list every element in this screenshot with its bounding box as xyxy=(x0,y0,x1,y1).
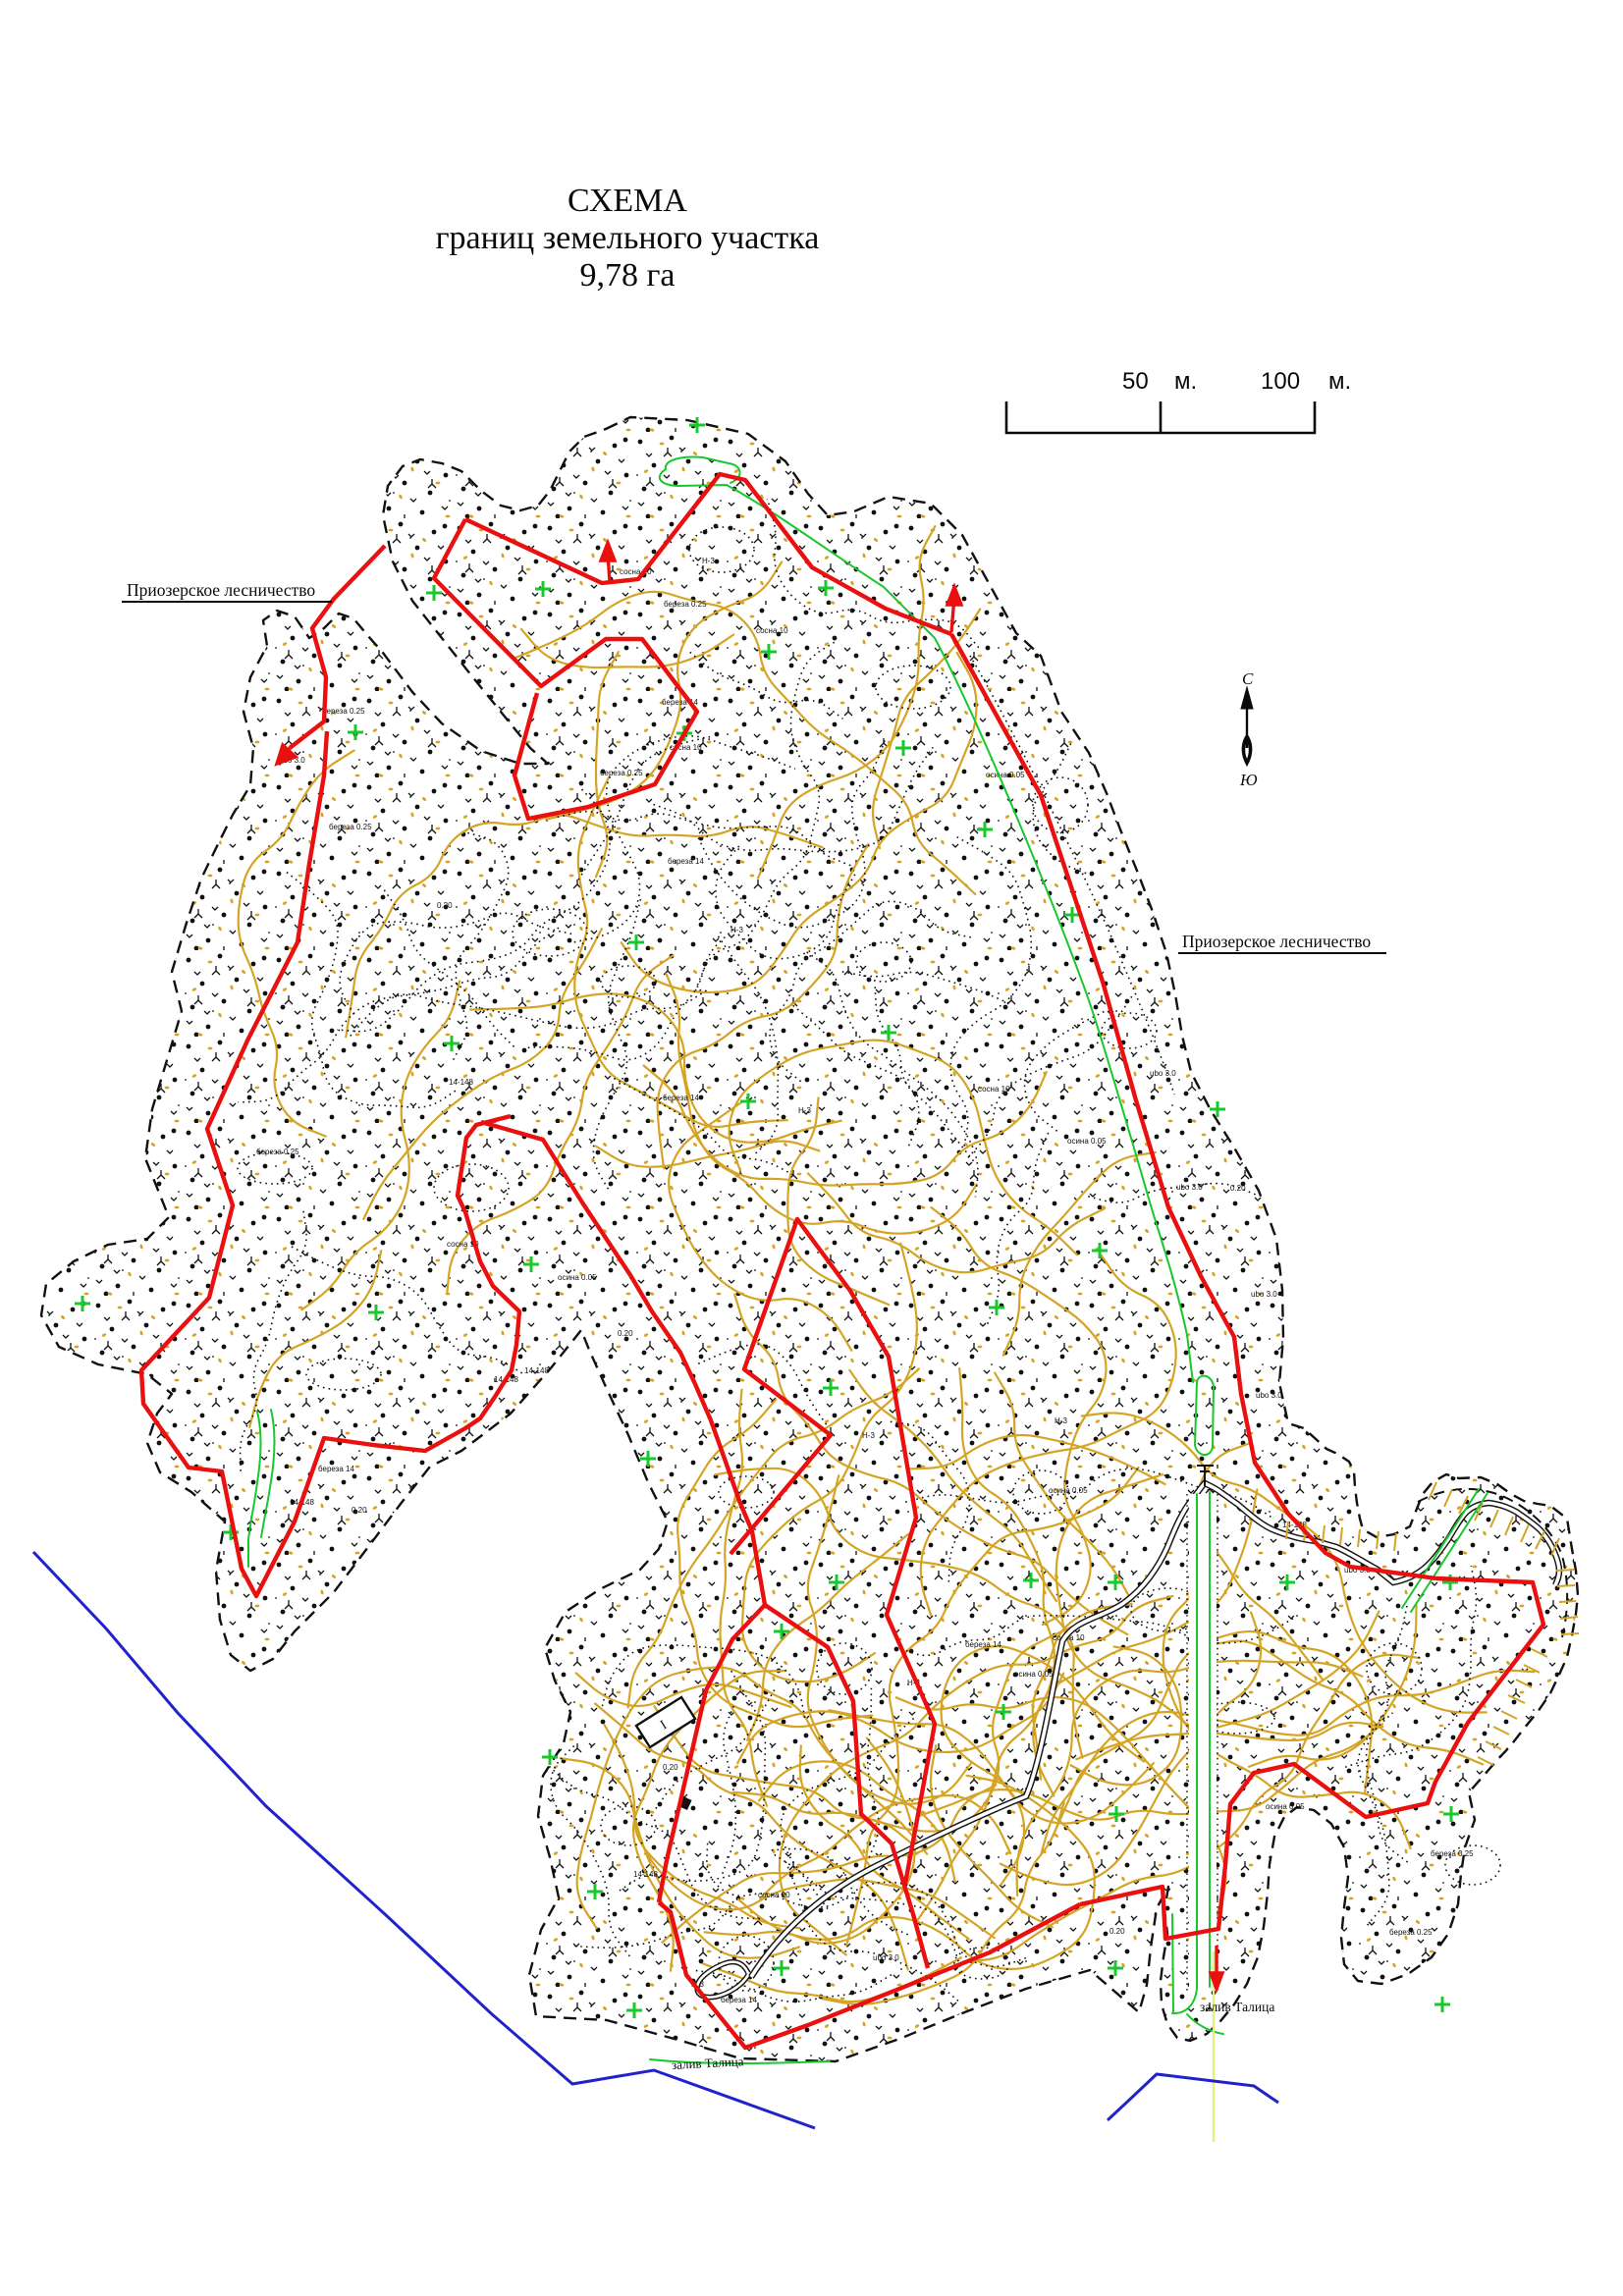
svg-text:осина 0.05: осина 0.05 xyxy=(1067,1137,1107,1146)
svg-text:H-3: H-3 xyxy=(702,557,715,565)
svg-text:осина 0.05: осина 0.05 xyxy=(1266,1802,1305,1811)
svg-text:береза 0.25: береза 0.25 xyxy=(600,769,643,777)
svg-text:береза 14: береза 14 xyxy=(318,1465,354,1473)
svg-text:0.20: 0.20 xyxy=(663,1763,678,1772)
svg-text:береза 14: береза 14 xyxy=(721,1996,757,2004)
svg-text:Приозерское лесничество: Приозерское лесничество xyxy=(1182,932,1371,951)
svg-text:H-3: H-3 xyxy=(1055,1416,1067,1425)
svg-text:береза 0.25: береза 0.25 xyxy=(1389,1928,1433,1937)
svg-text:м.: м. xyxy=(1174,368,1197,395)
svg-text:ubo 3.0: ubo 3.0 xyxy=(873,1953,899,1962)
svg-text:H-3: H-3 xyxy=(730,926,743,934)
svg-text:береза 0.25: береза 0.25 xyxy=(322,707,365,716)
svg-text:Приозерское лесничество: Приозерское лесничество xyxy=(127,580,315,600)
svg-text:ubo 3.0: ubo 3.0 xyxy=(1256,1391,1282,1400)
svg-text:ubo 3.0: ubo 3.0 xyxy=(1176,1183,1203,1192)
svg-text:береза 14: береза 14 xyxy=(965,1640,1001,1649)
svg-text:0.20: 0.20 xyxy=(437,901,453,910)
svg-text:осина 0.05: осина 0.05 xyxy=(558,1273,597,1282)
svg-text:сосна 10: сосна 10 xyxy=(756,626,788,635)
svg-text:0.20: 0.20 xyxy=(1109,1927,1125,1936)
svg-text:14-148: 14-148 xyxy=(524,1366,549,1375)
svg-text:СХЕМА: СХЕМА xyxy=(568,183,687,219)
svg-text:50: 50 xyxy=(1122,368,1149,395)
svg-text:14-148: 14-148 xyxy=(633,1870,658,1879)
svg-text:береза 14: береза 14 xyxy=(663,1094,699,1102)
svg-text:осина 0.05: осина 0.05 xyxy=(986,771,1025,779)
svg-text:береза 0.25: береза 0.25 xyxy=(256,1148,299,1156)
svg-text:ubo 3.0: ubo 3.0 xyxy=(1251,1290,1277,1299)
svg-text:осина 0.05: осина 0.05 xyxy=(1014,1670,1054,1679)
svg-text:береза 14: береза 14 xyxy=(668,857,704,866)
svg-text:14-148: 14-148 xyxy=(449,1078,473,1087)
svg-text:сосна 10: сосна 10 xyxy=(978,1085,1010,1094)
svg-text:С: С xyxy=(1242,669,1254,688)
svg-text:Ю: Ю xyxy=(1239,771,1258,789)
svg-text:0.20: 0.20 xyxy=(352,1506,367,1515)
svg-text:береза 0.25: береза 0.25 xyxy=(664,600,707,609)
svg-text:залив Талица: залив Талица xyxy=(1200,2000,1274,2014)
svg-text:осина 0.05: осина 0.05 xyxy=(1049,1486,1088,1495)
svg-text:H-3: H-3 xyxy=(862,1431,875,1440)
svg-text:сосна 10: сосна 10 xyxy=(758,1891,790,1899)
svg-text:ubo 3.0: ubo 3.0 xyxy=(1150,1069,1176,1078)
svg-text:100: 100 xyxy=(1261,368,1300,395)
svg-text:0.20: 0.20 xyxy=(618,1329,633,1338)
svg-text:9,78 га: 9,78 га xyxy=(579,257,675,294)
svg-text:береза 0.25: береза 0.25 xyxy=(1431,1849,1474,1858)
svg-text:0.20: 0.20 xyxy=(1230,1184,1246,1193)
svg-text:береза 0.25: береза 0.25 xyxy=(329,823,372,831)
svg-text:м.: м. xyxy=(1328,368,1351,395)
svg-text:H-3: H-3 xyxy=(798,1106,811,1115)
svg-text:границ земельного участка: границ земельного участка xyxy=(436,220,820,256)
